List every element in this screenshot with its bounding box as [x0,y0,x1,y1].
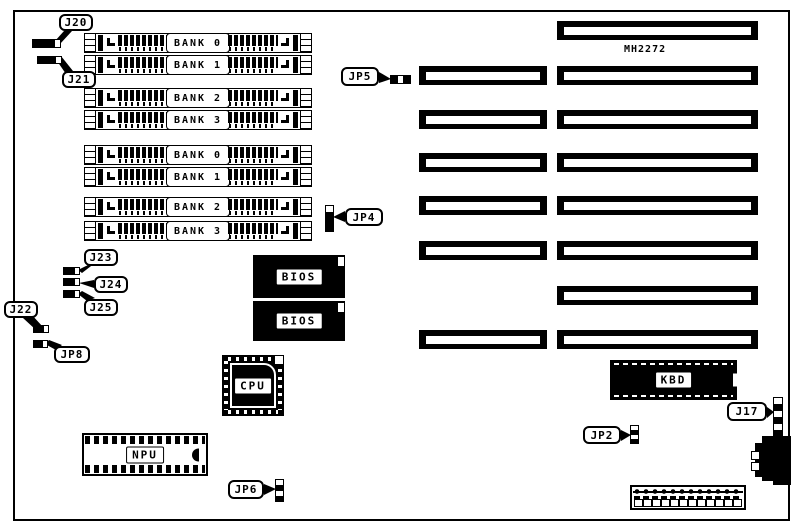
jumper-pin [404,76,410,83]
callout-jp6: JP6 [228,480,264,499]
jumper-j25 [63,290,80,298]
callout-j23: J23 [84,249,118,266]
jumper-j21 [37,56,62,64]
jumper-pin [75,291,79,297]
jumper-pin [44,326,48,332]
jumper-pin [55,40,60,47]
leader-jp4 [333,211,345,222]
callout-j25: J25 [84,299,118,316]
jumper-pin [398,76,405,83]
jumper-j20 [32,39,61,48]
jumper-pin [43,341,47,347]
jumper-pin [75,268,79,274]
jumper-pin [276,497,283,502]
jumper-pin [391,76,398,83]
motherboard-diagram: BANK 0 BANK 1 BANK 2 BANK 3 BANK 0 BANK … [0,0,798,531]
callout-j20: J20 [59,14,93,31]
callout-j22: J22 [4,301,38,318]
jumper-pin [326,226,333,232]
jumper-jp5 [390,75,411,84]
jumper-pin [774,431,782,437]
callout-jp5: JP5 [341,67,379,86]
callout-jp8: JP8 [54,346,90,363]
jumper-jp8 [33,340,48,348]
jumper-pin [631,440,638,444]
jumper-jp6 [275,479,284,502]
callout-j17: J17 [727,402,767,421]
callout-jp4: JP4 [345,208,383,226]
callout-jp2: JP2 [583,426,621,444]
leader-j24 [79,280,94,288]
jumper-j24 [63,278,80,286]
callout-j21: J21 [62,71,96,88]
jumper-jp2 [630,425,639,444]
jumper-pin [75,279,79,285]
jumper-j17 [773,397,783,437]
jumper-pin [56,57,61,63]
jumper-jp4 [325,205,334,232]
callout-j24: J24 [94,276,128,293]
jumper-j22 [33,325,49,333]
jumper-j23 [63,267,80,275]
